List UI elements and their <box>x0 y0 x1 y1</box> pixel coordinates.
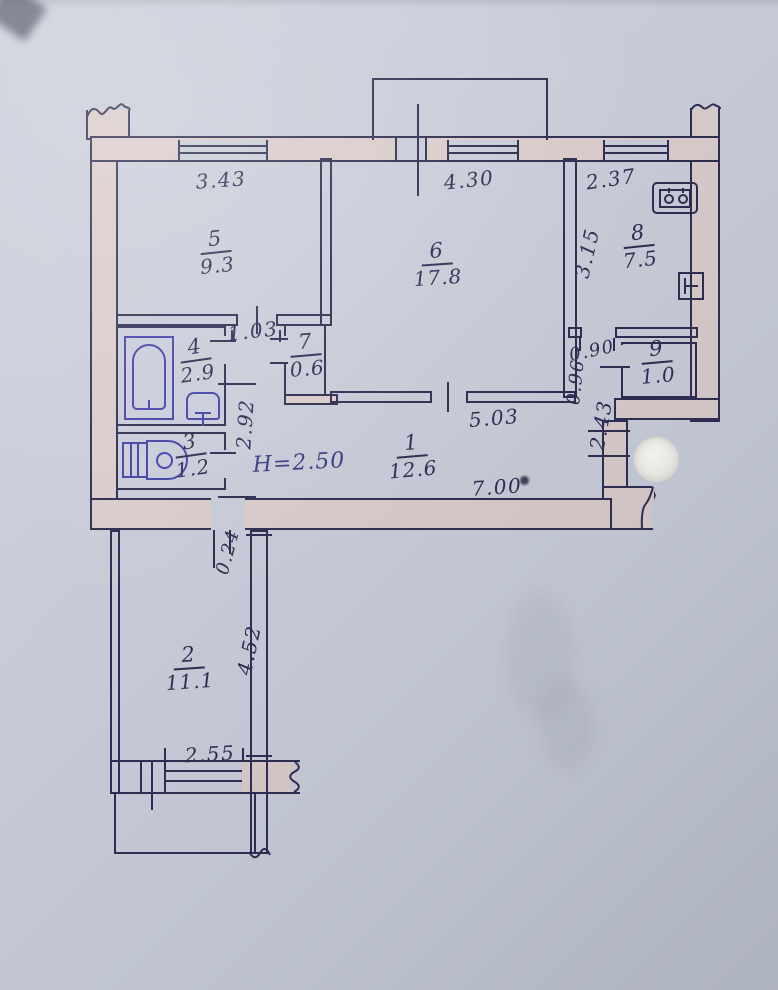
room2-door-gap <box>211 496 245 532</box>
stove-burner-b <box>678 194 688 204</box>
room9-door-gap <box>619 345 625 367</box>
washbasin-drain-stem <box>202 412 204 426</box>
wall-room6-bottom-left <box>330 391 432 403</box>
room4-label: 4 2.9 <box>175 333 216 386</box>
whiteout-mark <box>634 437 679 482</box>
room8-label: 8 7.5 <box>619 220 659 272</box>
room9-area: 1.0 <box>640 364 677 388</box>
stove-inner <box>659 189 691 208</box>
kitchen-sink-stem <box>686 285 698 287</box>
room6-label: 6 17.8 <box>411 238 463 290</box>
paper-smudge-b <box>540 680 595 770</box>
room6-area: 17.8 <box>413 266 463 290</box>
toilet-bowl-circle <box>156 452 173 469</box>
bathtub-icon <box>124 336 174 420</box>
balcony-door-gap <box>395 138 427 160</box>
dim292-tick-b <box>218 496 256 498</box>
balcony-door-jamb-b <box>164 762 166 792</box>
balcony-top-outline <box>372 78 548 140</box>
room7-area: 0.6 <box>289 357 326 381</box>
paper-smudge-a <box>505 590 575 720</box>
window-kitchen <box>603 140 669 160</box>
room9-label: 9 1.0 <box>638 336 677 388</box>
dim-room2-bottom: 2.55 <box>184 741 236 768</box>
wall-under-room9 <box>614 398 720 420</box>
dim-hall-left: 2.92 <box>231 398 258 450</box>
floor-plan: 5 9.3 6 17.8 8 7.5 4 2.9 7 0.6 3 1.2 1 1… <box>0 0 778 990</box>
window-room5 <box>178 140 268 160</box>
room3-door-gap <box>221 450 228 478</box>
room2-window-line-a <box>166 770 242 772</box>
room1-label: 1 12.6 <box>386 429 439 482</box>
toilet-tank-line-b <box>137 444 139 476</box>
room2-number: 2 <box>172 642 205 670</box>
room8-number: 8 <box>621 220 655 249</box>
photo-corner-shadow <box>0 0 47 42</box>
room2-window-line-b <box>166 780 242 782</box>
balcony-door-leaf <box>151 762 153 810</box>
room9-door-tick <box>600 366 630 368</box>
room3-door-tick <box>210 452 236 454</box>
room2-label: 2 11.1 <box>163 642 215 694</box>
window-room6 <box>447 140 519 160</box>
room7-number: 7 <box>288 329 322 358</box>
dim-hall-top: 5.03 <box>468 404 520 432</box>
balcony-bottom-outline <box>114 792 256 854</box>
balcony-door-line <box>417 104 419 196</box>
room3-area: 1.2 <box>174 456 211 482</box>
dim255-tick-a <box>164 748 166 762</box>
dim452-tick-a <box>246 534 272 536</box>
balcony-door-jamb-a <box>140 762 142 792</box>
washbasin-icon <box>186 392 220 420</box>
wall-left <box>90 160 118 502</box>
toilet-tank-line-a <box>130 444 132 476</box>
stove-icon <box>652 182 698 214</box>
room5-label: 5 9.3 <box>196 226 236 278</box>
room2-area: 11.1 <box>165 670 215 694</box>
stove-knob-a <box>668 188 670 193</box>
dim255-tick-b <box>242 748 244 762</box>
kitchen-sink-icon <box>678 272 704 300</box>
stove-knob-b <box>682 188 684 193</box>
dim-hall-bottom: 7.00 <box>471 473 523 500</box>
toilet-tank <box>122 442 148 478</box>
room7-door-tick-b <box>270 362 288 364</box>
dim-room8-width: 2.37 <box>584 164 637 195</box>
room7-label: 7 0.6 <box>287 329 326 381</box>
dim-room6-width: 4.30 <box>443 165 496 194</box>
dim-corridor: 1.03 <box>227 316 280 345</box>
entry-door-tick <box>588 455 630 457</box>
dim452-tick-b <box>246 755 272 757</box>
room1-area: 12.6 <box>388 457 438 482</box>
wall-kitchen-bottom-left <box>568 327 582 338</box>
dim-vestibule: 0.96 <box>563 358 589 406</box>
room1-number: 1 <box>394 430 428 459</box>
room6-number: 6 <box>420 238 453 266</box>
partition-room5-room6 <box>320 158 332 326</box>
room5-number: 5 <box>198 226 232 255</box>
room6-door-tick <box>447 382 449 412</box>
dim-room5-width: 3.43 <box>195 166 247 193</box>
bathtub-drain-stem <box>148 400 150 410</box>
room3-label: 3 1.2 <box>170 428 211 481</box>
room5-area: 9.3 <box>199 254 236 279</box>
room8-area: 7.5 <box>622 248 659 273</box>
room4-area: 2.9 <box>179 361 216 387</box>
ceiling-height-note: H=2.50 <box>252 448 346 478</box>
wall-hall-bottom <box>90 498 612 530</box>
dim292-tick-a <box>218 383 256 385</box>
wall-room5-bottom-left <box>116 314 238 326</box>
dim-room2-offset: 0.24 <box>212 527 244 577</box>
stove-burner-a <box>664 194 674 204</box>
room2-wall-left <box>110 530 120 794</box>
room9-number: 9 <box>639 336 673 365</box>
wall-room6-bottom-right <box>466 391 576 403</box>
